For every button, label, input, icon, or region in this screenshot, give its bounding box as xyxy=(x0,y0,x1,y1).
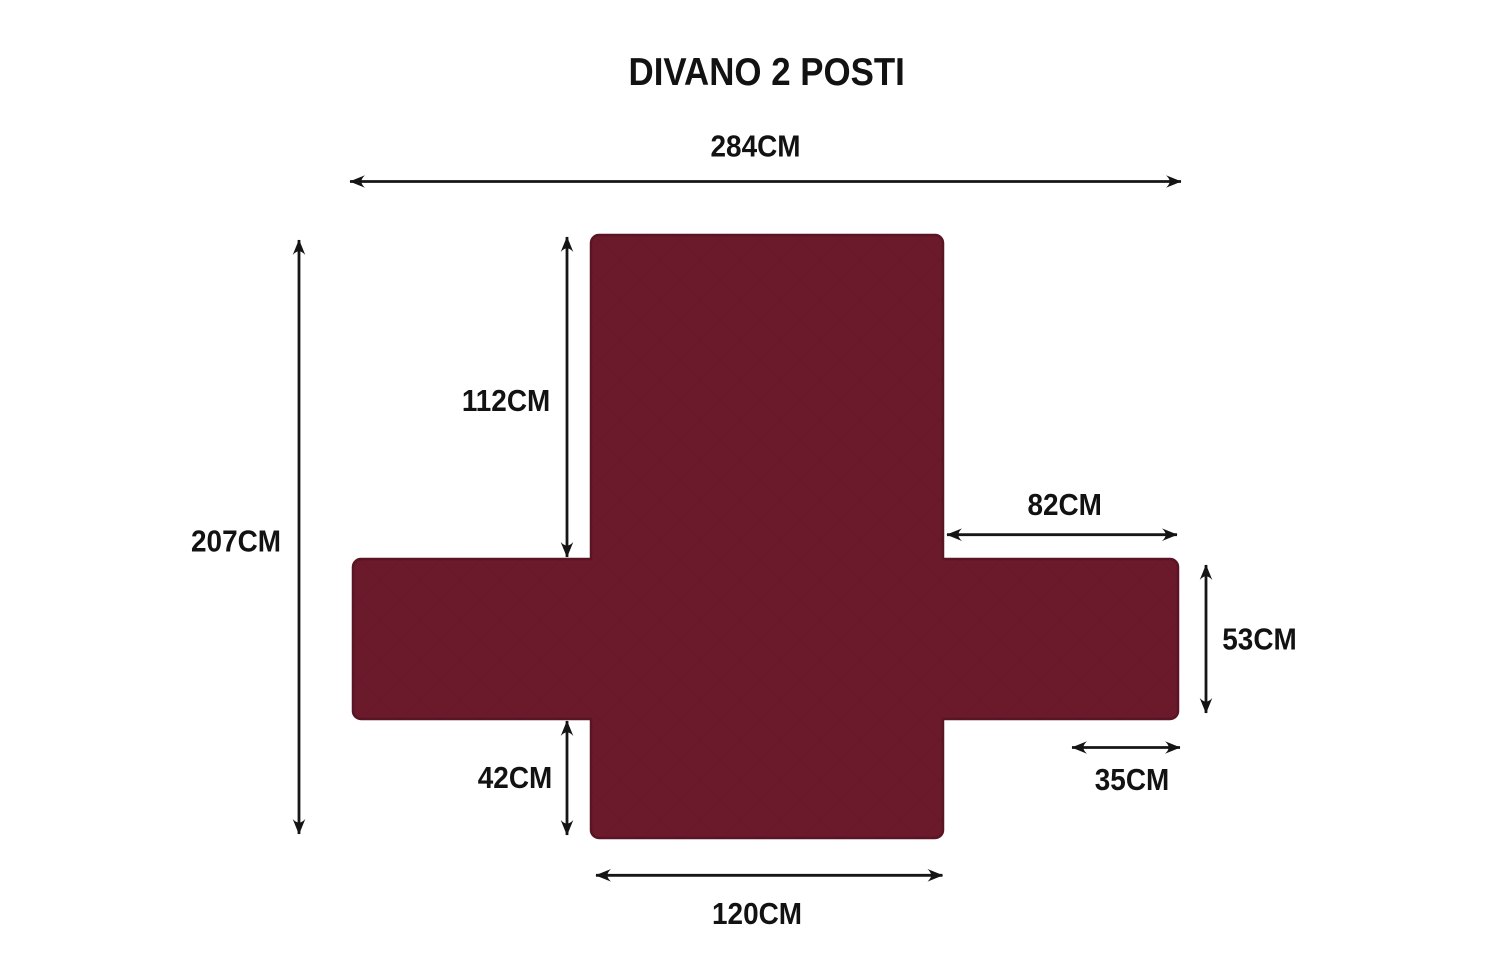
svg-text:DIVANO 2 POSTI: DIVANO 2 POSTI xyxy=(629,50,905,93)
svg-text:35CM: 35CM xyxy=(1095,763,1169,798)
svg-text:42CM: 42CM xyxy=(478,761,552,796)
svg-text:112CM: 112CM xyxy=(462,384,550,419)
svg-text:284CM: 284CM xyxy=(711,129,801,164)
svg-text:82CM: 82CM xyxy=(1027,488,1101,523)
svg-text:120CM: 120CM xyxy=(712,896,802,931)
svg-text:207CM: 207CM xyxy=(191,524,281,559)
svg-text:53CM: 53CM xyxy=(1222,622,1296,657)
